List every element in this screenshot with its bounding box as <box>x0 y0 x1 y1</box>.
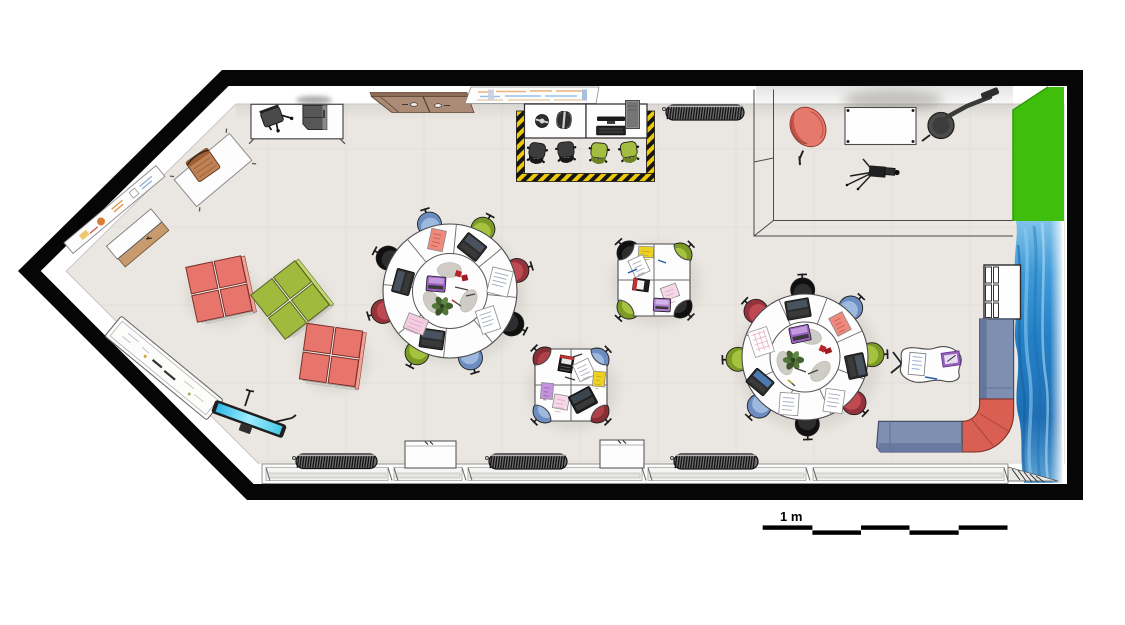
svg-text:1 m: 1 m <box>780 509 802 524</box>
